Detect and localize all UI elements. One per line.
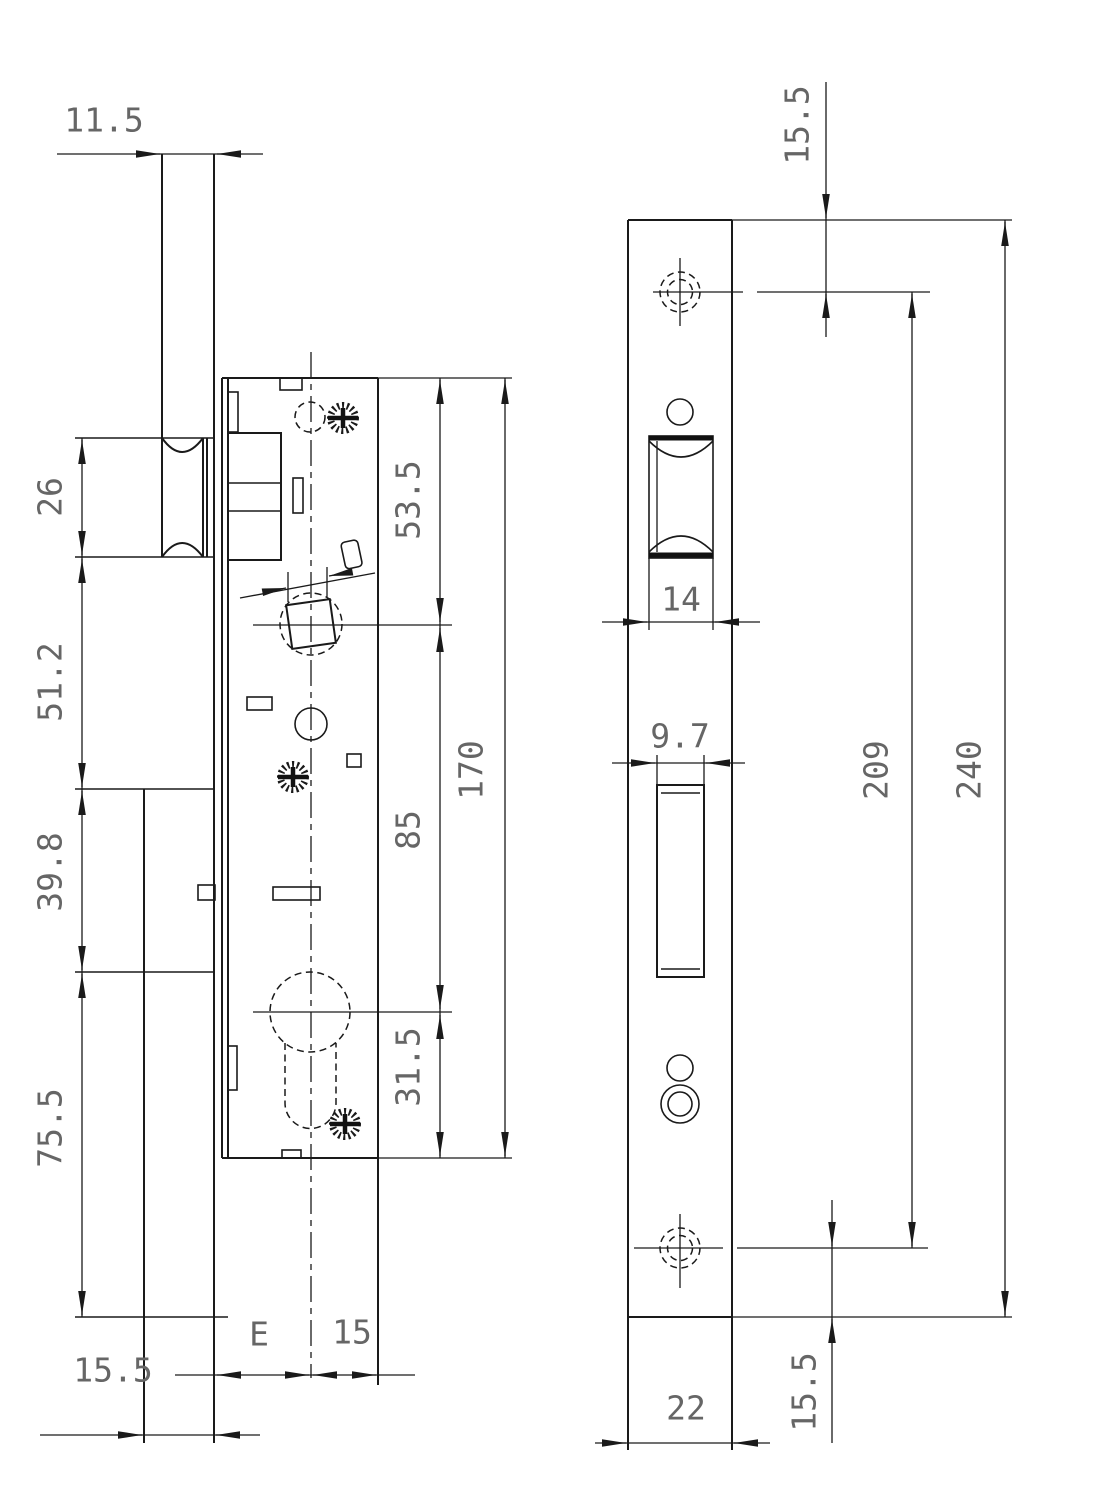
dim-plate-height: 240	[950, 740, 989, 800]
pin-hole-top	[667, 399, 693, 425]
screw-bottom	[330, 1112, 360, 1137]
dim-bottom-to-screw: 15.5	[785, 1352, 824, 1431]
dim-screw-centers: 209	[857, 740, 896, 800]
top-notch	[280, 378, 302, 390]
drawing-sheet: 11.5 26 51.2 39.8 75.5 15.5 E 15	[0, 0, 1114, 1500]
lock-case-side-view: 11.5 26 51.2 39.8 75.5 15.5 E 15	[31, 101, 513, 1444]
strike-plate-view: 15.5 14 9.7 209 240	[595, 82, 1012, 1450]
roller-bolt	[162, 438, 207, 557]
strike-outline	[628, 220, 1012, 1450]
handle-hole	[295, 402, 325, 432]
dim-top-to-screw: 15.5	[778, 85, 817, 164]
lock-outline	[75, 154, 512, 1443]
dim-top-to-spindle: 53.5	[389, 460, 428, 539]
spindle-square-dimension	[240, 567, 375, 602]
dim-cylinder-to-bottom: 31.5	[389, 1027, 428, 1106]
screw-middle	[278, 765, 308, 790]
dim-plate-top-depth: 11.5	[64, 101, 143, 140]
dim-plate-width: 22	[666, 1389, 706, 1428]
dim-roller-to-spindle: 51.2	[31, 642, 70, 721]
dim-case-height: 170	[452, 740, 491, 800]
strike-dimensions: 15.5 14 9.7 209 240	[595, 82, 1005, 1443]
screw-hole-top	[653, 258, 743, 326]
dim-bolt-cutout-width: 9.7	[650, 717, 710, 756]
dim-backset: E	[249, 1315, 269, 1354]
dim-behind-center: 15	[332, 1313, 372, 1352]
dim-roller-cutout-width: 14	[661, 580, 701, 619]
dim-mid-section: 39.8	[31, 832, 70, 911]
lock-dimension-drawing: 11.5 26 51.2 39.8 75.5 15.5 E 15	[0, 0, 1114, 1500]
pin-hole-bottom	[667, 1055, 693, 1081]
bottom-notch	[282, 1150, 301, 1158]
follower-detail	[340, 539, 362, 569]
dim-roller-height: 26	[31, 477, 70, 517]
dim-lower-section: 75.5	[31, 1088, 70, 1167]
screw-hole-bottom	[634, 1214, 723, 1288]
dim-plate-bottom-depth: 15.5	[73, 1351, 152, 1390]
cylinder-hole-plate	[661, 1085, 699, 1123]
roller-cutout	[649, 436, 713, 558]
screw-top	[328, 406, 358, 431]
deadbolt-cutout	[657, 785, 704, 977]
euro-cylinder-hole	[270, 972, 350, 1129]
lock-dimensions: 11.5 26 51.2 39.8 75.5 15.5 E 15	[31, 101, 506, 1436]
dim-spindle-to-cylinder: 85	[389, 810, 428, 850]
